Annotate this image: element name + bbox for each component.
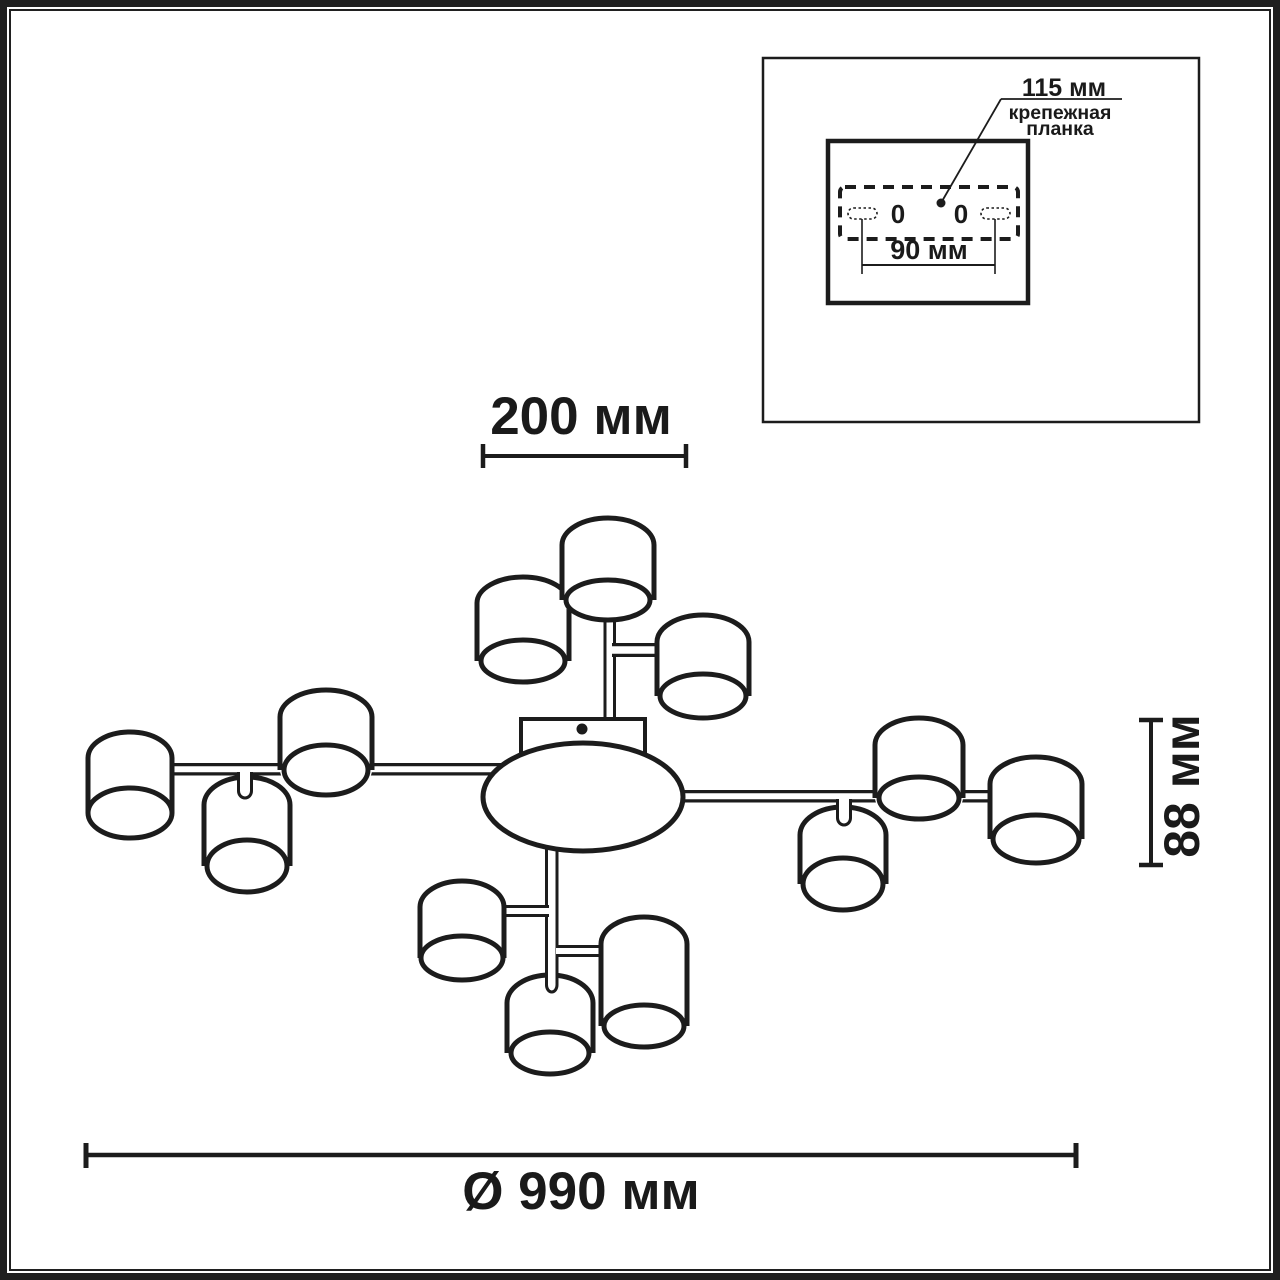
hole-distance-label: 115 мм [964, 76, 1164, 101]
mounting-plate-label: крепежная планка [960, 106, 1160, 137]
inner-frame-border [9, 9, 1271, 1271]
chandelier-dimension-sheet: { "inset": { "hole_distance_label": "115… [0, 0, 1280, 1280]
slot-zero-mark-right: 0 [947, 201, 975, 227]
slot-zero-mark-left: 0 [884, 201, 912, 227]
top-width-dimension-label: 200 мм [431, 390, 731, 443]
slot-span-label: 90 мм [859, 237, 999, 264]
shade-height-dimension-label: 88 мм [1157, 686, 1207, 886]
diameter-dimension-label: Ø 990 мм [381, 1165, 781, 1218]
